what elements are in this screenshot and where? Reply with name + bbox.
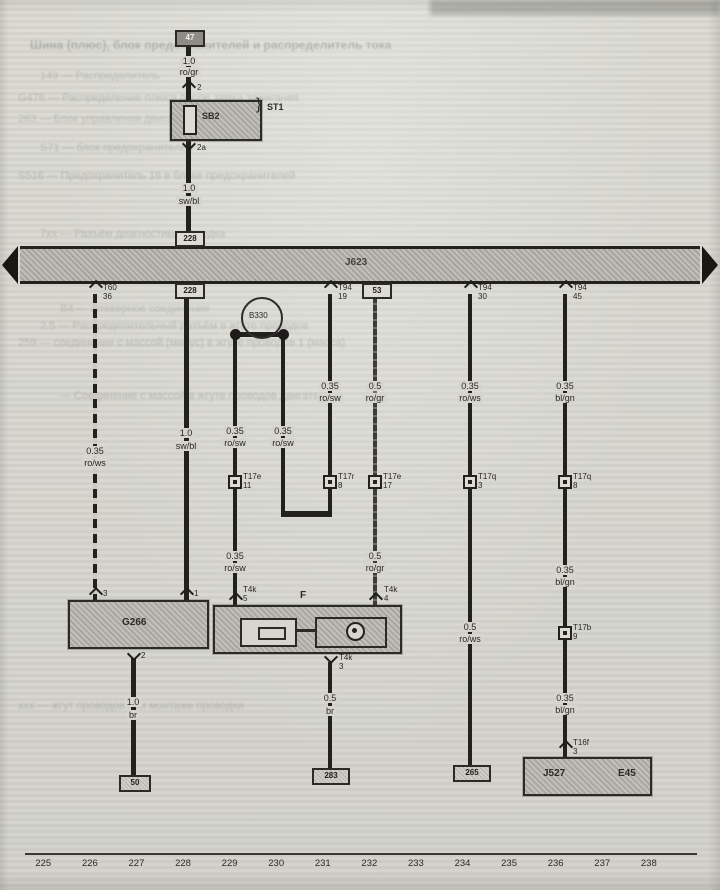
ecu-pin-label: T94 bbox=[338, 283, 352, 292]
inline-connector-icon bbox=[558, 626, 572, 640]
wire-color-label: ro/sw bbox=[222, 563, 248, 573]
track-ref-box: 228 bbox=[175, 231, 205, 247]
track-label: 226 bbox=[67, 858, 114, 869]
inline-connector-icon bbox=[558, 475, 572, 489]
component-pin-number: 3 bbox=[573, 747, 577, 756]
connector-label: T17r bbox=[338, 472, 354, 481]
wire-size-label: 0.35 bbox=[272, 426, 294, 436]
wire-color-label: ro/sw bbox=[317, 393, 343, 403]
wire-size-label: 0.5 bbox=[462, 622, 479, 632]
track-label: 228 bbox=[160, 858, 207, 869]
wire-color-label: bl/gn bbox=[553, 393, 577, 403]
wire-size-label: 1.0 bbox=[181, 183, 198, 193]
ghost-text-line: S71 — блок предохранителей bbox=[40, 142, 193, 154]
connector-arrow-icon bbox=[559, 740, 573, 754]
wire-size-label: 0.5 bbox=[367, 551, 384, 561]
wire-size-label: 0.35 bbox=[224, 426, 246, 436]
component-pin-number: 3 bbox=[339, 662, 343, 671]
scan-smudge bbox=[430, 0, 720, 15]
connector-label: T17e bbox=[383, 472, 401, 481]
connector-arrow-icon bbox=[127, 647, 141, 661]
ghost-text-line: 149 — Распределитель bbox=[40, 70, 160, 82]
wire-color-label: ro/ws bbox=[457, 634, 483, 644]
connection-label: B330 bbox=[249, 311, 268, 320]
wire-color-label: br bbox=[324, 706, 336, 716]
ecu-pin-label: T94 bbox=[573, 283, 587, 292]
wire-size-label: 0.35 bbox=[84, 446, 106, 456]
wire-color-label: ro/sw bbox=[270, 438, 296, 448]
inline-connector-icon bbox=[463, 475, 477, 489]
track-ref-box: 53 bbox=[362, 283, 392, 299]
fuse-icon bbox=[183, 105, 197, 135]
track-label: 232 bbox=[346, 858, 393, 869]
component-pin-number: 4 bbox=[384, 594, 388, 603]
ghost-text-line: Шина (плюс), блок предохранителей и расп… bbox=[30, 38, 391, 52]
ghost-text-line: 259 — соединение с массой (минус) в жгут… bbox=[18, 337, 345, 349]
wire-color-label: ro/gr bbox=[364, 563, 387, 573]
actuator-dot-icon bbox=[352, 628, 357, 633]
wire-color-label: ro/sw bbox=[222, 438, 248, 448]
wire-color-label: sw/bl bbox=[177, 196, 202, 206]
track-label: 234 bbox=[439, 858, 486, 869]
connector-pin-number: 17 bbox=[383, 481, 392, 490]
wire-color-label: ro/gr bbox=[178, 67, 201, 77]
continuation-arrow-icon bbox=[2, 246, 18, 284]
track-label: 233 bbox=[393, 858, 440, 869]
wire-color-label: ro/gr bbox=[364, 393, 387, 403]
track-label: 230 bbox=[253, 858, 300, 869]
fuse-holder-label: ST1 bbox=[267, 102, 284, 112]
connector-arrow-icon bbox=[89, 587, 103, 601]
connector-pin-number: 9 bbox=[573, 632, 577, 641]
ecu-pin-number: 19 bbox=[338, 292, 347, 301]
inline-connector-icon bbox=[368, 475, 382, 489]
track-label: 238 bbox=[626, 858, 673, 869]
inline-connector-icon bbox=[228, 475, 242, 489]
connector-label: T17b bbox=[573, 623, 591, 632]
ground-box: 50 bbox=[119, 775, 151, 792]
track-ref-box: 265 bbox=[453, 765, 491, 782]
wire-size-label: 0.5 bbox=[322, 693, 339, 703]
connector-pin-number: 8 bbox=[573, 481, 577, 490]
wire-branch7 bbox=[468, 294, 472, 765]
fuse-label: SB2 bbox=[202, 111, 220, 121]
wire-color-label: br bbox=[127, 710, 139, 720]
component-label: G266 bbox=[122, 617, 146, 628]
continuation-box-47: 47 bbox=[175, 30, 205, 47]
continuation-arrow-icon bbox=[702, 246, 718, 284]
ground-box: 283 bbox=[312, 768, 350, 785]
component-pin-label: 1 bbox=[194, 589, 198, 598]
inline-connector-icon bbox=[323, 475, 337, 489]
ghost-text-line: — Соединение с массой в жгуте проводов д… bbox=[60, 390, 331, 402]
connector-arrow-icon bbox=[180, 587, 194, 601]
switch-contact-icon bbox=[258, 627, 286, 640]
wire-color-label: sw/bl bbox=[174, 441, 199, 451]
ecu-pin-label: T60 bbox=[103, 283, 117, 292]
wire-size-label: 0.35 bbox=[554, 381, 576, 391]
junction-dot-icon bbox=[230, 329, 241, 340]
component-label: J527 bbox=[543, 768, 565, 779]
wire-size-label: 0.35 bbox=[554, 565, 576, 575]
wire-color-label: ro/ws bbox=[82, 458, 108, 468]
component-pin-label: T16f bbox=[573, 738, 589, 747]
wire-size-label: 0.5 bbox=[367, 381, 384, 391]
ecu-pin-number: 30 bbox=[478, 292, 487, 301]
connector-label: T17q bbox=[478, 472, 496, 481]
component-label: E45 bbox=[618, 768, 636, 779]
track-rule bbox=[25, 853, 697, 855]
ghost-text-line: 263 — Блок управления двигателя bbox=[18, 113, 195, 125]
ecu-pin-label: T94 bbox=[478, 283, 492, 292]
track-label: 235 bbox=[486, 858, 533, 869]
wire-size-label: 1.0 bbox=[178, 428, 195, 438]
component-pin-label: T4k bbox=[339, 653, 352, 662]
wire-size-label: 0.35 bbox=[319, 381, 341, 391]
brace-icon: } bbox=[256, 96, 261, 114]
mechanical-link-line bbox=[295, 629, 317, 632]
wire-size-label: 1.0 bbox=[181, 56, 198, 66]
scanned-wiring-diagram-page: Шина (плюс), блок предохранителей и расп… bbox=[0, 0, 720, 890]
connector-pin-number: 11 bbox=[243, 481, 251, 490]
connector-label: T17q bbox=[573, 472, 591, 481]
component-pin-number: 5 bbox=[243, 594, 247, 603]
track-label: 225 bbox=[20, 858, 67, 869]
component-pin-label: T4k bbox=[243, 585, 256, 594]
ecu-label: J623 bbox=[345, 257, 367, 268]
wire-size-label: 1.0 bbox=[125, 697, 142, 707]
ecu-pin-number: 45 bbox=[573, 292, 582, 301]
component-pin-label: T4k bbox=[384, 585, 397, 594]
wire-size-label: 0.35 bbox=[459, 381, 481, 391]
component-pin-label: 3 bbox=[103, 589, 107, 598]
wire-size-label: 0.35 bbox=[554, 693, 576, 703]
connector-label: T17e bbox=[243, 472, 261, 481]
wire-branch8 bbox=[563, 294, 567, 758]
connector-pin-number: 3 bbox=[478, 481, 482, 490]
connector-arrow-icon bbox=[369, 592, 383, 606]
junction-dot-icon bbox=[278, 329, 289, 340]
track-label: 236 bbox=[532, 858, 579, 869]
connector-pin-number: 8 bbox=[338, 481, 342, 490]
ghost-text-line: S516 — Предохранитель 16 в блоке предохр… bbox=[18, 170, 295, 182]
fuse-pin-label: 2a bbox=[197, 143, 206, 152]
connector-arrow-icon bbox=[229, 592, 243, 606]
track-label: 231 bbox=[299, 858, 346, 869]
wire-color-label: ro/ws bbox=[457, 393, 483, 403]
ecu-pin-number: 36 bbox=[103, 292, 112, 301]
component-label: F bbox=[300, 590, 306, 601]
component-pin-label: 2 bbox=[141, 651, 145, 660]
wire-size-label: 0.35 bbox=[224, 551, 246, 561]
fuse-pin-label: 2 bbox=[197, 83, 201, 92]
track-ref-box: 228 bbox=[175, 283, 205, 299]
wire-u-turn bbox=[281, 511, 332, 517]
track-number-row: 225 226 227 228 229 230 231 232 233 234 … bbox=[20, 858, 672, 869]
track-label: 229 bbox=[206, 858, 253, 869]
track-label: 227 bbox=[113, 858, 160, 869]
wire-color-label: bl/gn bbox=[553, 577, 577, 587]
track-label: 237 bbox=[579, 858, 626, 869]
wire-color-label: bl/gn bbox=[553, 705, 577, 715]
